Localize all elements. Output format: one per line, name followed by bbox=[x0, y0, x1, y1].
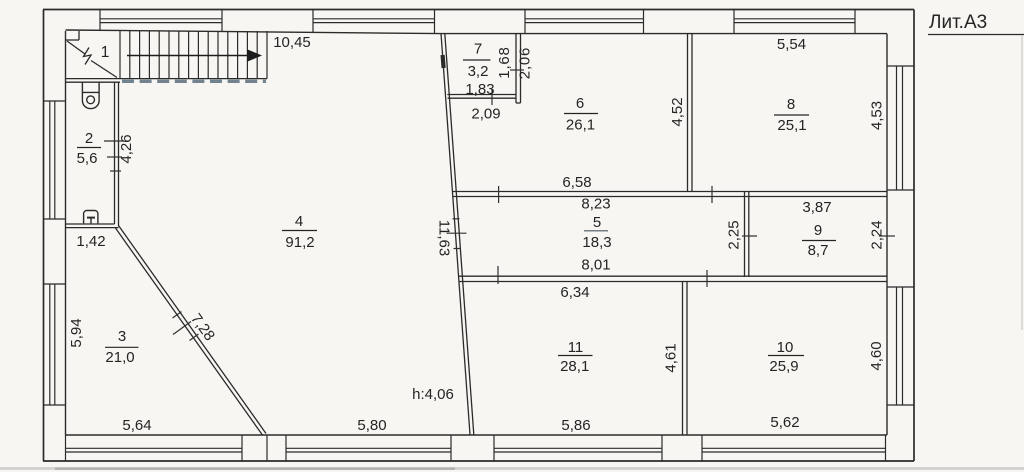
svg-text:11,63: 11,63 bbox=[436, 220, 453, 256]
svg-text:5: 5 bbox=[593, 214, 601, 231]
svg-text:21,0: 21,0 bbox=[105, 349, 134, 366]
svg-text:6,34: 6,34 bbox=[560, 284, 589, 301]
svg-text:4,61: 4,61 bbox=[663, 343, 680, 372]
svg-text:5,6: 5,6 bbox=[77, 150, 98, 167]
svg-text:2,09: 2,09 bbox=[471, 106, 500, 123]
svg-text:5,94: 5,94 bbox=[68, 318, 85, 347]
svg-text:2,06: 2,06 bbox=[517, 47, 534, 79]
svg-text:1: 1 bbox=[101, 44, 110, 61]
svg-text:h:4,06: h:4,06 bbox=[412, 386, 454, 403]
svg-text:1,83: 1,83 bbox=[465, 81, 494, 98]
svg-text:Лит.А3: Лит.А3 bbox=[929, 12, 987, 33]
svg-text:5,54: 5,54 bbox=[777, 36, 806, 53]
svg-text:1,68: 1,68 bbox=[496, 46, 513, 78]
svg-text:18,3: 18,3 bbox=[582, 234, 611, 251]
svg-text:11: 11 bbox=[568, 339, 584, 356]
svg-text:6,58: 6,58 bbox=[562, 174, 591, 191]
svg-text:8,01: 8,01 bbox=[581, 257, 610, 274]
svg-text:4,60: 4,60 bbox=[868, 341, 885, 370]
svg-text:7: 7 bbox=[474, 41, 482, 58]
svg-text:4,52: 4,52 bbox=[669, 97, 686, 126]
svg-text:10,45: 10,45 bbox=[273, 34, 311, 51]
svg-text:8: 8 bbox=[787, 96, 795, 113]
svg-text:91,2: 91,2 bbox=[285, 234, 314, 251]
svg-text:2,24: 2,24 bbox=[869, 220, 886, 249]
svg-text:9: 9 bbox=[814, 222, 822, 239]
svg-text:4,26: 4,26 bbox=[118, 134, 135, 163]
svg-text:5,64: 5,64 bbox=[122, 417, 151, 434]
svg-text:5,62: 5,62 bbox=[770, 414, 799, 431]
svg-text:8,23: 8,23 bbox=[581, 196, 610, 213]
svg-text:4: 4 bbox=[295, 213, 303, 230]
svg-text:10: 10 bbox=[777, 339, 794, 356]
svg-text:25,9: 25,9 bbox=[769, 358, 798, 375]
svg-text:2: 2 bbox=[85, 130, 93, 147]
svg-text:4,53: 4,53 bbox=[869, 101, 886, 130]
svg-text:25,1: 25,1 bbox=[777, 117, 806, 134]
svg-text:8,7: 8,7 bbox=[808, 242, 829, 259]
svg-text:6: 6 bbox=[576, 95, 584, 112]
svg-text:5,80: 5,80 bbox=[357, 417, 386, 434]
svg-text:5,86: 5,86 bbox=[561, 417, 590, 434]
svg-text:26,1: 26,1 bbox=[566, 117, 595, 134]
svg-text:28,1: 28,1 bbox=[560, 358, 589, 375]
svg-text:3: 3 bbox=[118, 328, 126, 345]
svg-text:3,2: 3,2 bbox=[468, 63, 489, 80]
svg-text:3,87: 3,87 bbox=[802, 199, 831, 216]
svg-text:2,25: 2,25 bbox=[726, 220, 743, 249]
svg-text:1,42: 1,42 bbox=[76, 233, 105, 250]
